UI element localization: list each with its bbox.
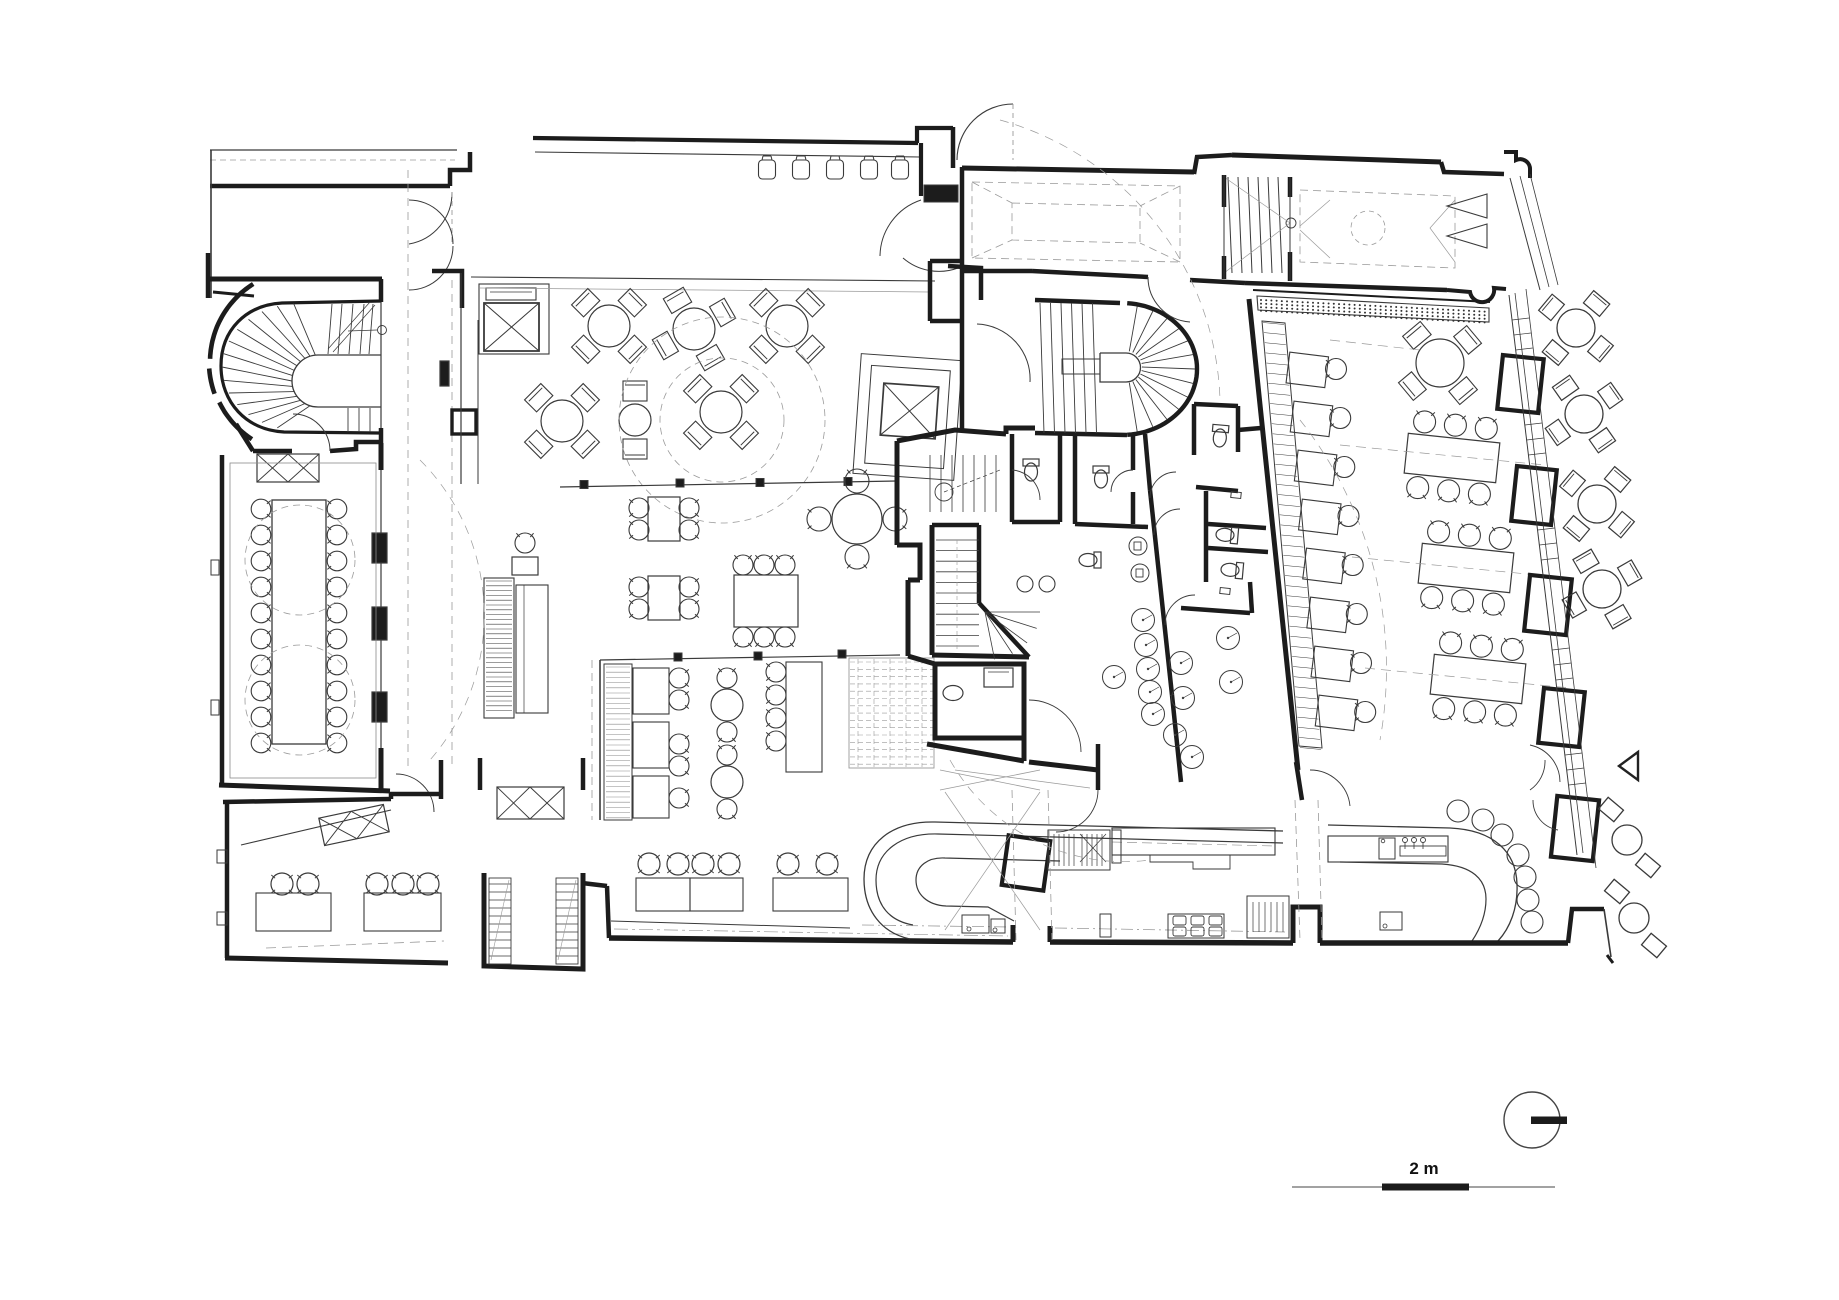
svg-text:2 m: 2 m (1409, 1159, 1438, 1178)
